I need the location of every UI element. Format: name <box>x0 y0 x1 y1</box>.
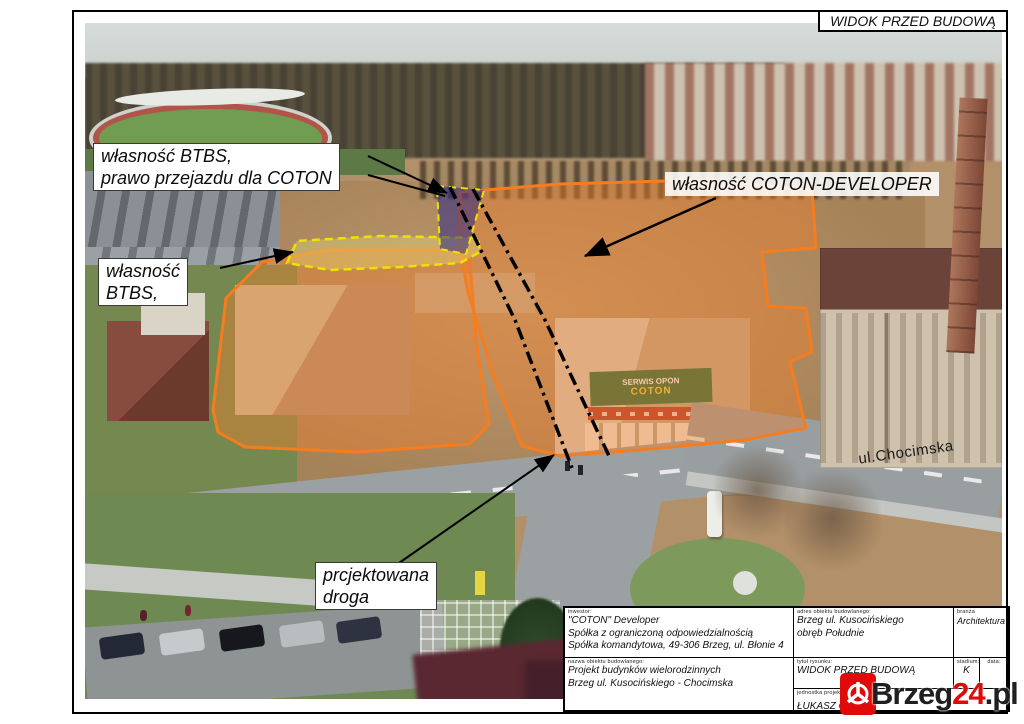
brzeg24-watermark: Brzeg24.pl <box>840 671 1018 717</box>
view-title-text: WIDOK PRZED BUDOWĄ <box>830 13 996 29</box>
sheet-border <box>72 10 1008 714</box>
brzeg24-wordmark: Brzeg24.pl <box>871 676 1018 712</box>
drawing-sheet: SERWIS OPON COTON <box>0 0 1024 724</box>
view-title-box: WIDOK PRZED BUDOWĄ <box>818 10 1008 32</box>
